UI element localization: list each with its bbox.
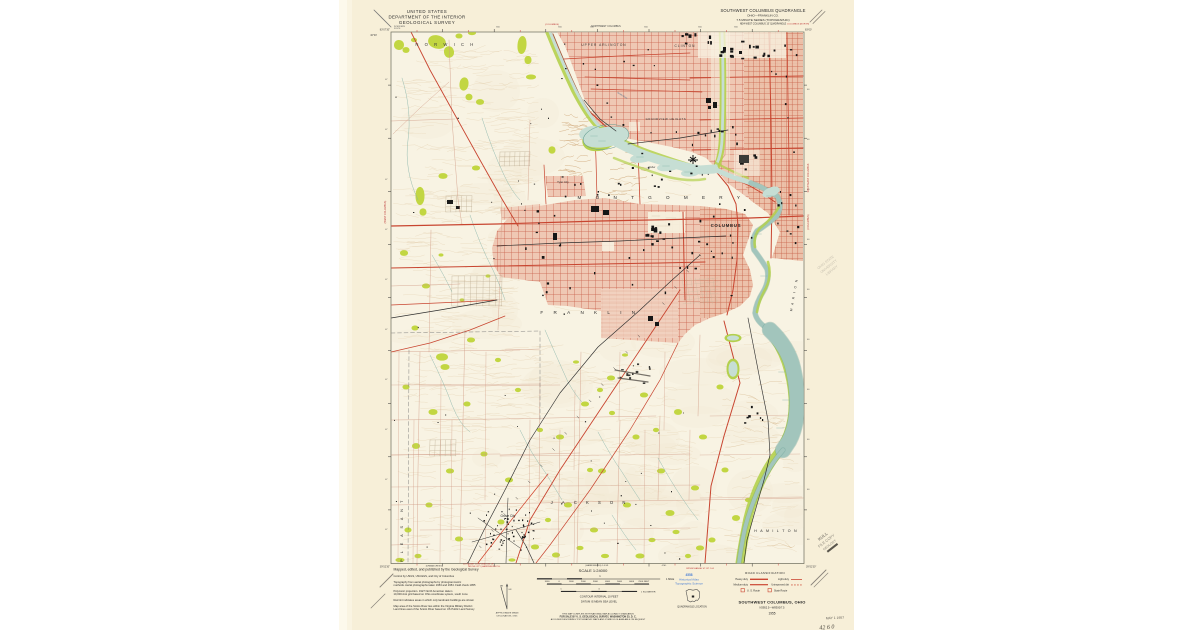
svg-text:M O N T G O M E R Y: M O N T G O M E R Y — [578, 195, 747, 200]
svg-text:39°52'30": 39°52'30" — [380, 566, 390, 569]
svg-text:GRANDVIEW HEIGHTS: GRANDVIEW HEIGHTS — [646, 117, 687, 121]
svg-text:2000: 2000 — [581, 581, 587, 583]
svg-text:1 KILOMETER: 1 KILOMETER — [641, 591, 656, 593]
svg-text:COLUMBUS (NORTH): COLUMBUS (NORTH) — [787, 24, 809, 26]
svg-text:GEOLOGICAL SURVEY: GEOLOGICAL SURVEY — [399, 20, 455, 25]
svg-text:methods. Aerial photographs t: methods. Aerial photographs taken 1953 a… — [394, 583, 477, 587]
svg-text:10,000-foot grid based on Ohio: 10,000-foot grid based on Ohio coordinat… — [394, 592, 469, 596]
svg-text:MN: MN — [500, 586, 504, 588]
svg-text:4558: 4558 — [685, 573, 692, 577]
svg-text:6000: 6000 — [629, 581, 635, 583]
svg-text:State Route: State Route — [774, 590, 788, 593]
svg-text:7000 FEET: 7000 FEET — [638, 581, 650, 583]
svg-text:NORTHWEST COLUMBUS: NORTHWEST COLUMBUS — [591, 25, 621, 28]
svg-text:N O R W I C H: N O R W I C H — [415, 42, 474, 47]
svg-text:39°52'30": 39°52'30" — [806, 566, 816, 569]
svg-text:1955: 1955 — [768, 612, 775, 616]
svg-text:1 MILE: 1 MILE — [666, 577, 674, 581]
svg-text:MAY 1 1957: MAY 1 1957 — [826, 616, 845, 621]
svg-text:83°00': 83°00' — [805, 29, 812, 32]
svg-text:(WEST COLUMBUS): (WEST COLUMBUS) — [384, 200, 387, 223]
svg-text:Medium-duty: Medium-duty — [734, 584, 749, 587]
svg-text:J A C K S O N: J A C K S O N — [551, 500, 630, 505]
svg-text:UNITED STATES: UNITED STATES — [407, 9, 448, 14]
svg-text:CLINTON: CLINTON — [675, 44, 696, 48]
svg-text:4 MI.: 4 MI. — [662, 565, 667, 567]
svg-text:(CITY LIMIT CORPORATION OF: (CITY LIMIT CORPORATION OF — [463, 563, 494, 566]
svg-text:SOUTHWEST COLUMBUS QUADRANGLE: SOUTHWEST COLUMBUS QUADRANGLE — [721, 8, 806, 13]
svg-text:U. S. Route: U. S. Route — [747, 590, 761, 593]
svg-text:40°00': 40°00' — [370, 34, 377, 37]
svg-text:P L E A S A N T: P L E A S A N T — [400, 498, 404, 562]
svg-text:SOUTHEAST COLUMBUS: SOUTHEAST COLUMBUS — [807, 163, 810, 192]
svg-text:Heavy-duty: Heavy-duty — [735, 578, 748, 581]
svg-text:INTERCHANGE ST. RT. 104: INTERCHANGE ST. RT. 104 — [686, 567, 715, 570]
svg-text:Mapped, edited, and published: Mapped, edited, and published by the Geo… — [394, 568, 479, 572]
svg-text:CONTOUR INTERVAL 10 FEET: CONTOUR INTERVAL 10 FEET — [580, 595, 619, 599]
svg-text:DECLINATION, 1955: DECLINATION, 1955 — [497, 615, 518, 618]
svg-text:Control by USGS, USC&GS, and C: Control by USGS, USC&GS, and City of Col… — [394, 574, 455, 578]
svg-text:QUADRANGLE LOCATION: QUADRANGLE LOCATION — [677, 606, 707, 609]
svg-text:DATUM IS MEAN SEA LEVEL: DATUM IS MEAN SEA LEVEL — [581, 600, 618, 604]
svg-text:42 6 0: 42 6 0 — [819, 623, 834, 630]
svg-text:Fisher: Fisher — [649, 166, 656, 169]
svg-text:5000: 5000 — [617, 581, 623, 583]
svg-text:(COLUMBUS): (COLUMBUS) — [545, 24, 559, 26]
svg-text:SCALE 1:24000: SCALE 1:24000 — [579, 568, 608, 573]
svg-text:NE/4 WEST COLUMBUS 15' QUADRAN: NE/4 WEST COLUMBUS 15' QUADRANGLE — [740, 22, 787, 25]
svg-text:1000: 1000 — [545, 581, 551, 583]
svg-text:(HARRISBURG) 1.6 MI.: (HARRISBURG) 1.6 MI. — [585, 564, 609, 567]
svg-text:Topographic Science: Topographic Science — [675, 582, 703, 586]
svg-text:FOR SALE BY U. S. GEOLOGICAL S: FOR SALE BY U. S. GEOLOGICAL SURVEY, WAS… — [560, 615, 637, 618]
svg-text:Land lines east of the Scioto: Land lines east of the Scioto River base… — [394, 607, 476, 611]
svg-text:ROUTE: ROUTE — [394, 28, 401, 30]
svg-text:ROAD CLASSIFICATION: ROAD CLASSIFICATION — [745, 571, 785, 575]
svg-text:Grove City: Grove City — [500, 514, 515, 518]
svg-text:A FOLDER DESCRIBING TOPOGRAPHI: A FOLDER DESCRIBING TOPOGRAPHIC MAPS AND… — [551, 618, 646, 621]
svg-text:Tyler City: Tyler City — [557, 180, 569, 184]
svg-text:COLUMBUS: COLUMBUS — [711, 223, 742, 228]
svg-text:APPROXIMATE MEAN: APPROXIMATE MEAN — [496, 612, 519, 615]
svg-text:Red tint indicates areas in wh: Red tint indicates areas in which only l… — [394, 598, 475, 602]
svg-text:7.5 MINUTE SERIES (TOPOGRAPHIC: 7.5 MINUTE SERIES (TOPOGRAPHIC) — [736, 18, 789, 22]
svg-text:H A M I L T O N: H A M I L T O N — [754, 529, 798, 533]
svg-text:Unimproved dirt: Unimproved dirt — [771, 584, 789, 587]
svg-text:UPPER ARLINGTON: UPPER ARLINGTON — [581, 43, 626, 47]
svg-text:4000: 4000 — [605, 581, 611, 583]
svg-text:(COLUMBUS): (COLUMBUS) — [807, 214, 810, 229]
svg-text:F R A N K L I N: F R A N K L I N — [540, 310, 639, 315]
svg-text:1000: 1000 — [569, 581, 575, 583]
svg-text:Light-duty: Light-duty — [778, 578, 790, 581]
svg-text:83°07'30": 83°07'30" — [380, 29, 390, 32]
svg-text:DEPARTMENT OF THE INTERIOR: DEPARTMENT OF THE INTERIOR — [389, 15, 466, 20]
svg-text:3000: 3000 — [593, 581, 599, 583]
svg-text:N3952.5—W8300/7.5: N3952.5—W8300/7.5 — [760, 606, 786, 610]
svg-text:SOUTHWEST COLUMBUS, OHIO: SOUTHWEST COLUMBUS, OHIO — [738, 600, 805, 605]
